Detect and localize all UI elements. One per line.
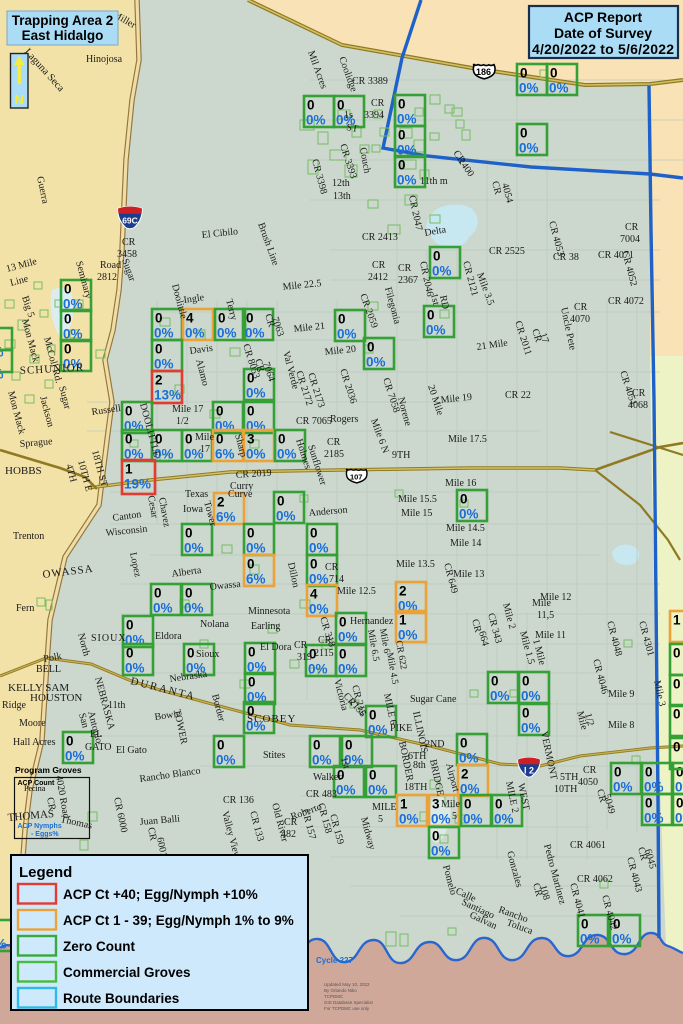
svg-text:Rogers: Rogers	[330, 414, 358, 425]
svg-text:BELL: BELL	[36, 664, 61, 675]
svg-text:107: 107	[350, 472, 363, 481]
svg-text:TCPDMC: TCPDMC	[324, 994, 344, 999]
svg-text:0: 0	[64, 342, 72, 357]
svg-text:Mile 15.5: Mile 15.5	[398, 494, 437, 505]
svg-text:0: 0	[369, 708, 377, 723]
svg-text:0: 0	[248, 645, 256, 660]
svg-text:0: 0	[307, 98, 315, 113]
svg-text:Hinojosa: Hinojosa	[86, 54, 123, 65]
svg-text:2: 2	[399, 584, 407, 599]
svg-text:0: 0	[155, 342, 163, 357]
svg-text:8th: 8th	[413, 760, 426, 771]
svg-text:Road: Road	[100, 260, 121, 271]
svg-text:6%: 6%	[215, 447, 235, 462]
svg-text:0%: 0%	[153, 601, 173, 616]
svg-text:0%: 0%	[276, 509, 296, 524]
svg-text:GIS Database Specialist: GIS Database Specialist	[324, 1000, 374, 1005]
svg-text:Moore: Moore	[19, 718, 46, 729]
svg-text:CR 3389: CR 3389	[352, 76, 388, 87]
svg-text:0: 0	[522, 674, 530, 689]
svg-text:CR: CR	[574, 302, 588, 313]
svg-text:13th: 13th	[333, 191, 351, 202]
svg-text:0: 0	[367, 340, 375, 355]
svg-text:0: 0	[247, 526, 255, 541]
svg-text:5: 5	[452, 811, 457, 822]
svg-text:Trapping Area 2: Trapping Area 2	[12, 13, 114, 28]
svg-text:El Dora: El Dora	[260, 642, 292, 653]
svg-text:0%: 0%	[431, 812, 451, 827]
svg-text:ST: ST	[345, 122, 358, 135]
svg-text:11th m: 11th m	[420, 176, 448, 187]
svg-text:6%: 6%	[216, 510, 236, 525]
svg-text:5: 5	[378, 814, 383, 825]
svg-text:2812: 2812	[97, 272, 117, 283]
svg-text:0: 0	[369, 768, 377, 783]
svg-text:0: 0	[64, 312, 72, 327]
svg-text:Mile: Mile	[195, 432, 214, 443]
svg-text:0: 0	[185, 586, 193, 601]
svg-text:0%: 0%	[184, 541, 204, 556]
svg-text:SIOUX: SIOUX	[91, 633, 127, 644]
svg-text:4050: 4050	[578, 777, 598, 788]
svg-text:0%: 0%	[125, 661, 145, 676]
svg-text:Curve: Curve	[228, 489, 253, 500]
svg-text:Trenton: Trenton	[13, 531, 44, 542]
svg-text:0%: 0%	[612, 932, 632, 947]
svg-text:0%: 0%	[399, 812, 419, 827]
svg-text:0: 0	[427, 308, 435, 323]
svg-text:Updated May 10, 2022: Updated May 10, 2022	[324, 982, 370, 987]
svg-text:ACP Report: ACP Report	[564, 9, 643, 25]
svg-text:0: 0	[645, 796, 653, 811]
svg-text:CR 4062: CR 4062	[577, 874, 613, 885]
svg-text:0: 0	[154, 586, 162, 601]
svg-text:0: 0	[66, 734, 74, 749]
svg-text:Texas: Texas	[185, 489, 208, 500]
svg-text:2367: 2367	[398, 275, 418, 286]
svg-text:0: 0	[310, 526, 318, 541]
svg-text:0: 0	[313, 738, 321, 753]
svg-text:7004: 7004	[620, 234, 640, 245]
svg-text:0%: 0%	[580, 932, 600, 947]
svg-text:CR 2413: CR 2413	[362, 232, 398, 243]
svg-text:CR: CR	[625, 222, 639, 233]
svg-text:9TH: 9TH	[392, 450, 410, 461]
svg-text:East Hidalgo: East Hidalgo	[22, 28, 104, 43]
svg-text:0: 0	[126, 618, 134, 633]
svg-text:Route Boundaries: Route Boundaries	[63, 991, 179, 1006]
svg-text:0%: 0%	[0, 345, 4, 360]
svg-text:0%: 0%	[494, 812, 514, 827]
svg-text:Ridge: Ridge	[2, 700, 26, 711]
svg-text:0: 0	[125, 432, 133, 447]
svg-text:17: 17	[200, 444, 210, 455]
svg-text:0: 0	[246, 311, 254, 326]
svg-text:Fern: Fern	[16, 603, 34, 614]
svg-text:4068: 4068	[628, 400, 648, 411]
svg-text:Legend: Legend	[19, 864, 72, 881]
svg-text:0%: 0%	[246, 386, 266, 401]
svg-text:CR: CR	[294, 640, 308, 651]
svg-text:0: 0	[248, 675, 256, 690]
svg-text:By Orlando Niko: By Orlando Niko	[324, 988, 357, 993]
svg-text:0: 0	[187, 646, 195, 661]
svg-text:0: 0	[216, 404, 224, 419]
svg-text:Mile 17.5: Mile 17.5	[448, 434, 487, 445]
svg-text:0%: 0%	[308, 662, 328, 677]
svg-text:0%: 0%	[338, 630, 358, 645]
svg-text:0: 0	[676, 796, 683, 811]
svg-text:CR 4061: CR 4061	[570, 840, 606, 851]
svg-text:5TH: 5TH	[560, 772, 578, 783]
svg-text:0: 0	[460, 736, 468, 751]
svg-text:0%: 0%	[309, 541, 329, 556]
svg-text:SCOBEY: SCOBEY	[247, 713, 296, 725]
svg-text:0: 0	[339, 647, 347, 662]
svg-text:Mile 12.5: Mile 12.5	[337, 586, 376, 597]
svg-text:Iowa: Iowa	[183, 504, 204, 515]
svg-text:EL: EL	[90, 729, 102, 740]
svg-text:0%: 0%	[519, 141, 539, 156]
svg-text:0: 0	[339, 615, 347, 630]
svg-text:El Gato: El Gato	[116, 745, 147, 756]
svg-text:- Eggs%: - Eggs%	[31, 831, 59, 838]
svg-text:11th: 11th	[108, 700, 125, 711]
svg-text:0: 0	[673, 740, 681, 755]
svg-text:ACP Nymphs: ACP Nymphs	[18, 823, 62, 830]
svg-text:CR 22: CR 22	[505, 390, 531, 401]
svg-text:HOBBS: HOBBS	[5, 465, 42, 477]
svg-text:0%: 0%	[154, 326, 174, 341]
svg-text:Hall Acres: Hall Acres	[13, 737, 56, 748]
svg-text:0: 0	[433, 249, 441, 264]
svg-text:CR: CR	[371, 98, 385, 109]
svg-text:0: 0	[185, 432, 193, 447]
svg-text:Mile 14.5: Mile 14.5	[446, 523, 485, 534]
svg-text:0%: 0%	[519, 81, 539, 96]
svg-text:4070: 4070	[570, 314, 590, 325]
svg-text:1: 1	[673, 613, 681, 628]
svg-text:0: 0	[398, 97, 406, 112]
svg-text:0%: 0%	[521, 689, 541, 704]
svg-text:0%: 0%	[336, 783, 356, 798]
svg-text:3: 3	[247, 432, 255, 447]
svg-text:Mile: Mile	[532, 598, 551, 609]
svg-text:13%: 13%	[154, 388, 181, 403]
svg-text:0%: 0%	[426, 323, 446, 338]
svg-text:0%: 0%	[431, 844, 451, 859]
svg-text:0%: 0%	[366, 355, 386, 370]
svg-text:Stites: Stites	[263, 750, 285, 761]
svg-text:0%: 0%	[217, 326, 237, 341]
svg-text:CR: CR	[318, 635, 332, 646]
svg-text:Mile 8: Mile 8	[608, 720, 634, 731]
svg-text:6%: 6%	[246, 572, 266, 587]
svg-text:CR 483: CR 483	[306, 789, 337, 800]
svg-text:CR: CR	[583, 765, 597, 776]
svg-text:0: 0	[645, 765, 653, 780]
svg-text:0%: 0%	[65, 749, 85, 764]
svg-text:Eldora: Eldora	[155, 631, 182, 642]
svg-text:4: 4	[310, 587, 318, 602]
svg-text:18TH: 18TH	[404, 782, 427, 793]
svg-text:0: 0	[520, 66, 528, 81]
svg-text:ACP Ct 1 - 39; Egg/Nymph 1% to: ACP Ct 1 - 39; Egg/Nymph 1% to 9%	[63, 913, 294, 928]
svg-text:0%: 0%	[154, 357, 174, 372]
svg-text:0: 0	[491, 674, 499, 689]
svg-text:0: 0	[432, 829, 440, 844]
svg-text:CR 2525: CR 2525	[489, 246, 525, 257]
svg-text:GATO: GATO	[85, 742, 111, 753]
svg-text:0: 0	[464, 797, 472, 812]
svg-text:Commercial Groves: Commercial Groves	[63, 965, 191, 980]
svg-text:0: 0	[673, 707, 681, 722]
svg-text:For TCPDMC use only: For TCPDMC use only	[324, 1006, 370, 1011]
svg-text:0: 0	[64, 282, 72, 297]
svg-text:0: 0	[676, 765, 683, 780]
svg-text:CR: CR	[325, 562, 339, 573]
svg-text:0: 0	[185, 526, 193, 541]
svg-text:ACP Ct +40; Egg/Nymph +10%: ACP Ct +40; Egg/Nymph +10%	[63, 887, 258, 902]
svg-text:Mile: Mile	[441, 799, 460, 810]
svg-text:482: 482	[281, 829, 296, 840]
svg-text:319: 319	[297, 652, 312, 663]
svg-text:CR: CR	[398, 263, 412, 274]
svg-text:Walker: Walker	[313, 772, 342, 783]
svg-text:Hernandez: Hernandez	[350, 616, 394, 627]
svg-text:0: 0	[614, 765, 622, 780]
svg-text:Date of Survey: Date of Survey	[554, 25, 652, 41]
svg-text:0: 0	[155, 311, 163, 326]
svg-text:Mile 16: Mile 16	[445, 478, 476, 489]
svg-text:Mile 14: Mile 14	[450, 538, 481, 549]
svg-text:CR: CR	[122, 237, 136, 248]
svg-text:0%: 0%	[185, 326, 205, 341]
svg-text:0%: 0%	[397, 173, 417, 188]
svg-text:0: 0	[278, 432, 286, 447]
svg-text:0: 0	[247, 557, 255, 572]
svg-text:19%: 19%	[124, 477, 151, 492]
svg-text:1: 1	[400, 797, 408, 812]
svg-text:HOUSTON: HOUSTON	[30, 692, 82, 704]
svg-text:0: 0	[218, 311, 226, 326]
svg-text:0%: 0%	[459, 507, 479, 522]
svg-text:CR 136: CR 136	[223, 795, 254, 806]
svg-text:0%: 0%	[463, 812, 483, 827]
svg-text:0%: 0%	[0, 367, 4, 382]
svg-text:0%: 0%	[459, 751, 479, 766]
svg-text:0: 0	[522, 706, 530, 721]
svg-text:0: 0	[277, 494, 285, 509]
svg-text:2ND: 2ND	[425, 739, 444, 750]
svg-text:1: 1	[125, 462, 133, 477]
svg-text:0%: 0%	[277, 447, 297, 462]
svg-text:10TH: 10TH	[554, 784, 577, 795]
svg-text:2: 2	[217, 495, 225, 510]
svg-text:11,5: 11,5	[537, 610, 554, 621]
svg-text:1: 1	[399, 613, 407, 628]
svg-text:0%: 0%	[549, 81, 569, 96]
svg-text:0: 0	[398, 158, 406, 173]
svg-text:0: 0	[310, 557, 318, 572]
svg-text:0%: 0%	[613, 780, 633, 795]
svg-text:0: 0	[338, 312, 346, 327]
svg-text:0: 0	[398, 128, 406, 143]
svg-text:0%: 0%	[521, 721, 541, 736]
svg-text:CR: CR	[327, 437, 341, 448]
svg-text:1/2: 1/2	[176, 416, 189, 427]
svg-text:0: 0	[673, 677, 681, 692]
svg-text:0%: 0%	[338, 662, 358, 677]
svg-text:0: 0	[345, 738, 353, 753]
svg-text:0%: 0%	[490, 689, 510, 704]
svg-text:1s: 1s	[344, 110, 353, 121]
svg-text:Mile 15: Mile 15	[401, 508, 432, 519]
svg-text:0: 0	[216, 432, 224, 447]
svg-text:0%: 0%	[397, 112, 417, 127]
svg-text:Sioux: Sioux	[196, 649, 219, 660]
svg-text:2115: 2115	[314, 648, 334, 659]
svg-text:Sugar Cane: Sugar Cane	[410, 694, 457, 705]
svg-text:Pecina: Pecina	[24, 784, 46, 793]
svg-text:0%: 0%	[368, 783, 388, 798]
svg-text:0%: 0%	[675, 780, 683, 795]
svg-text:CR 4072: CR 4072	[608, 296, 644, 307]
svg-text:Earling: Earling	[251, 621, 280, 632]
svg-text:Minnesota: Minnesota	[248, 606, 291, 617]
svg-text:0: 0	[125, 404, 133, 419]
svg-text:0%: 0%	[337, 327, 357, 342]
svg-text:Mile 13: Mile 13	[453, 569, 484, 580]
svg-text:0%: 0%	[0, 937, 7, 952]
svg-text:MILE: MILE	[372, 802, 396, 813]
svg-text:N: N	[15, 92, 24, 107]
svg-text:Program Groves: Program Groves	[15, 765, 82, 775]
svg-text:0: 0	[460, 492, 468, 507]
svg-text:0%: 0%	[246, 541, 266, 556]
svg-text:0: 0	[550, 66, 558, 81]
svg-text:2: 2	[461, 767, 469, 782]
svg-text:CR 7065: CR 7065	[296, 416, 332, 427]
svg-text:Zero Count: Zero Count	[63, 939, 135, 954]
svg-text:I 2: I 2	[524, 766, 534, 776]
svg-text:69C: 69C	[122, 216, 138, 226]
svg-text:12th: 12th	[332, 178, 350, 189]
svg-text:0%: 0%	[309, 602, 329, 617]
svg-text:Mile 17: Mile 17	[172, 404, 203, 415]
svg-text:Mile 13.5: Mile 13.5	[396, 559, 435, 570]
svg-text:0: 0	[581, 917, 589, 932]
svg-text:0%: 0%	[644, 811, 664, 826]
svg-text:0: 0	[673, 646, 681, 661]
svg-text:3394: 3394	[364, 110, 384, 121]
svg-text:Nolana: Nolana	[200, 619, 229, 630]
svg-text:0%: 0%	[675, 811, 683, 826]
svg-text:0%: 0%	[644, 780, 664, 795]
svg-text:0: 0	[126, 646, 134, 661]
svg-text:CR: CR	[372, 260, 386, 271]
svg-text:0: 0	[247, 404, 255, 419]
svg-text:Cycle 227: Cycle 227	[316, 956, 353, 965]
svg-text:0: 0	[520, 126, 528, 141]
svg-text:0%: 0%	[245, 326, 265, 341]
svg-text:2412: 2412	[368, 272, 388, 283]
svg-text:0%: 0%	[432, 264, 452, 279]
svg-text:0%: 0%	[184, 601, 204, 616]
svg-text:0: 0	[217, 738, 225, 753]
svg-text:0%: 0%	[306, 113, 326, 128]
svg-text:0%: 0%	[216, 753, 236, 768]
svg-text:2185: 2185	[324, 449, 344, 460]
svg-text:714: 714	[329, 574, 344, 585]
svg-text:0%: 0%	[312, 753, 332, 768]
svg-text:4/20/2022 to 5/6/2022: 4/20/2022 to 5/6/2022	[532, 41, 674, 57]
svg-text:Mile 9: Mile 9	[608, 689, 634, 700]
svg-text:3: 3	[432, 797, 440, 812]
svg-text:186: 186	[476, 67, 491, 77]
svg-text:0: 0	[495, 797, 503, 812]
svg-text:2: 2	[155, 373, 163, 388]
svg-text:CR: CR	[632, 388, 646, 399]
